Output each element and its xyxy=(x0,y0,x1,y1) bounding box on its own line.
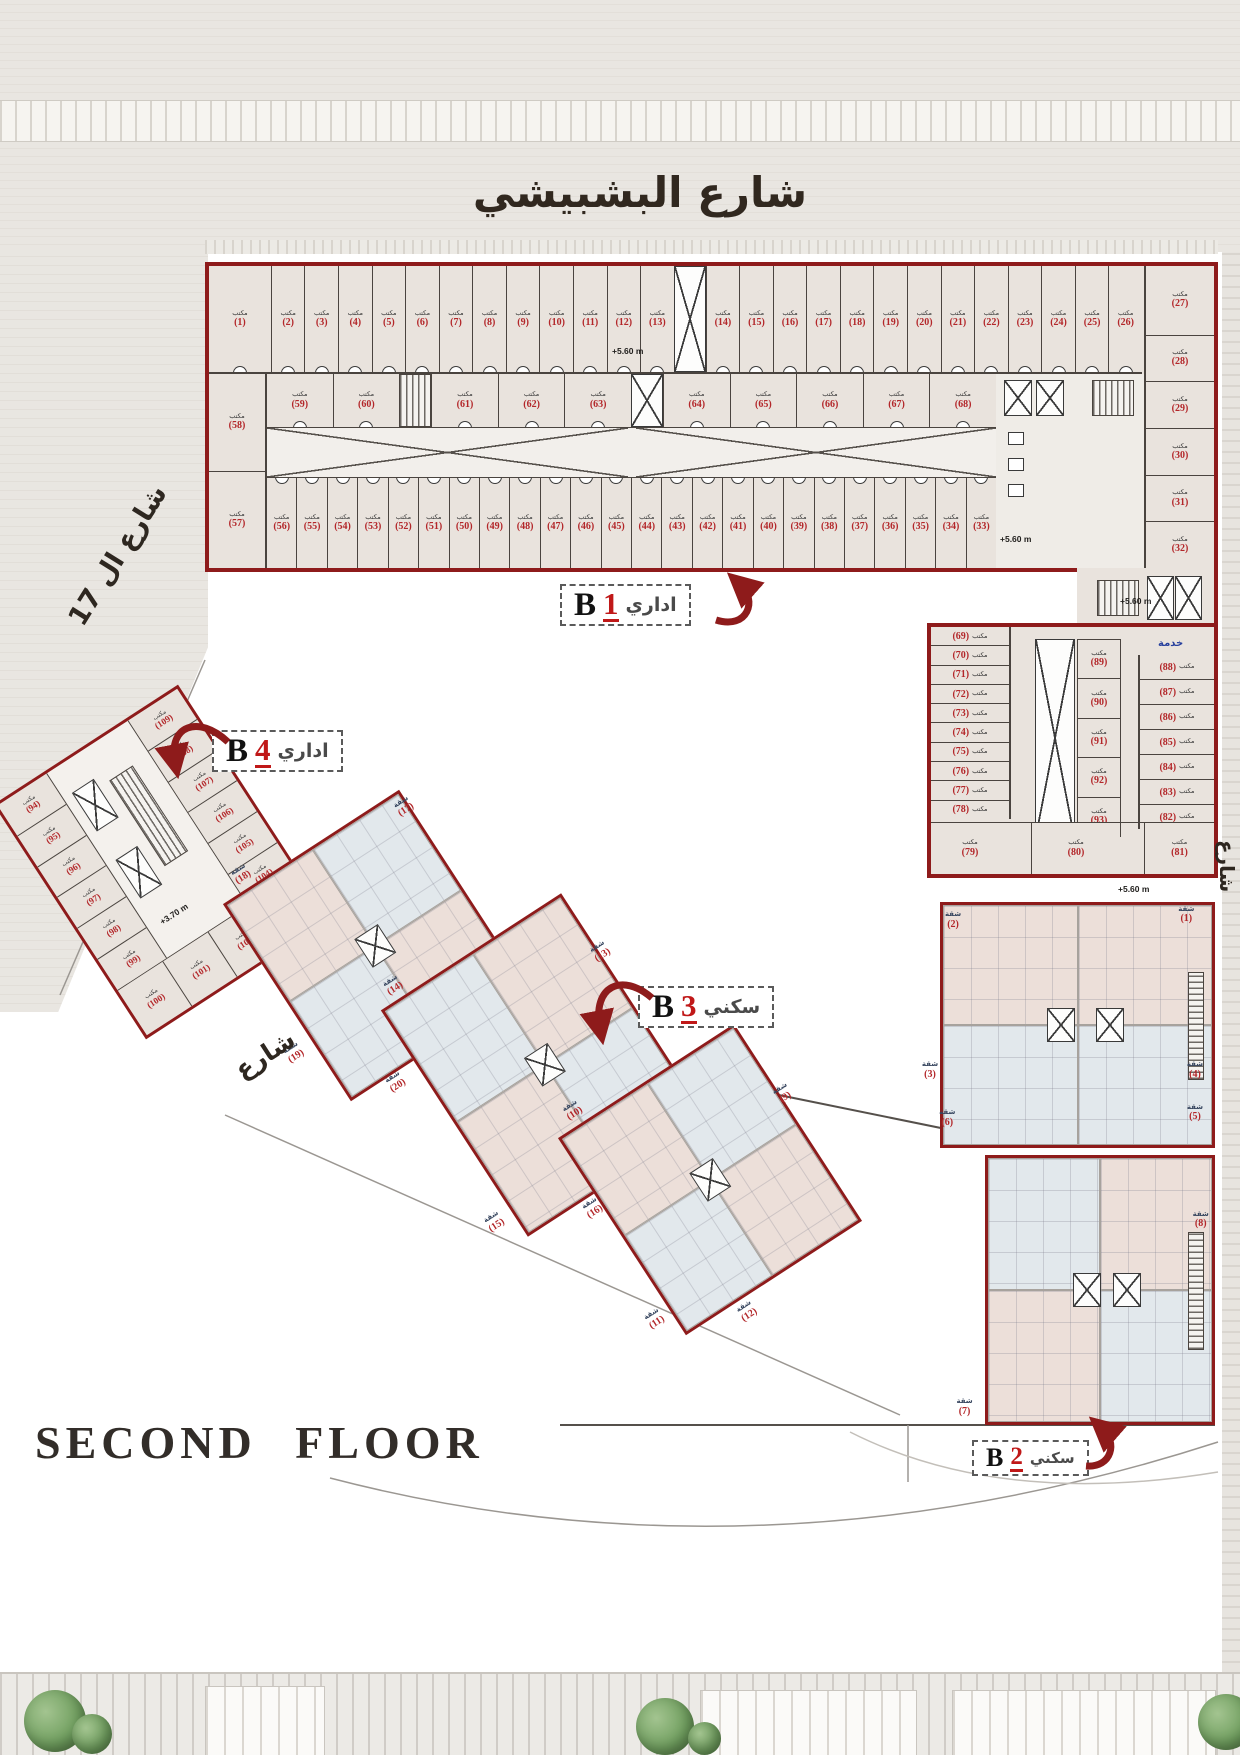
callout-arrows xyxy=(0,0,1240,1755)
site-plan: شارع البشبيشي شارع ال 17 شارع شارع SECON… xyxy=(0,0,1240,1755)
